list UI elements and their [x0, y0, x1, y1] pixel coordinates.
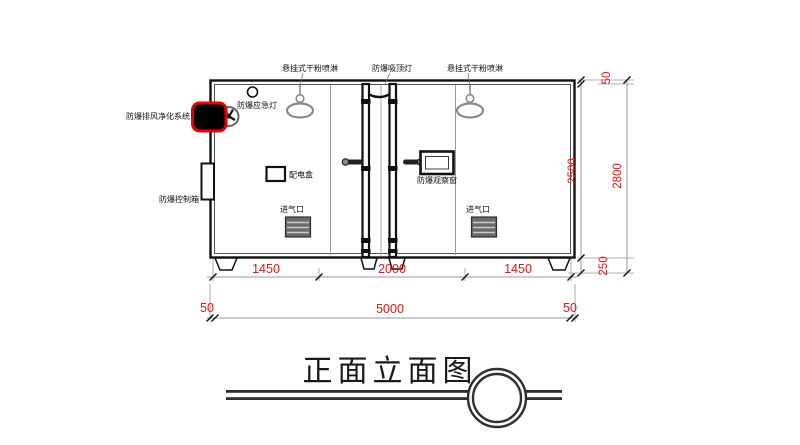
label-sprinkler-left: 悬挂式干粉喷淋: [282, 63, 338, 73]
dim-bottom-seg-3: 1450: [504, 262, 532, 276]
label-observation-window: 防爆观察窗: [417, 175, 457, 185]
label-emergency-lamp: 防爆应急灯: [237, 100, 277, 110]
dim-bottom-right-offset: 50: [563, 301, 577, 315]
label-control-cabinet: 防爆控制箱: [159, 194, 199, 204]
label-power-box: 配电盒: [289, 170, 313, 180]
air-inlet-right-grille: [472, 217, 497, 237]
title-mark-inner-circle: [473, 374, 521, 422]
control-cabinet-symbol: [202, 164, 215, 200]
emergency-lamp-symbol: [248, 87, 258, 97]
label-purifier-unit: 防爆排风净化系统: [126, 111, 190, 121]
dim-bottom-seg-1: 1450: [252, 262, 280, 276]
dim-right-base-height: 250: [598, 256, 610, 275]
air-inlet-left-grille: [286, 217, 311, 237]
dim-right-inner-height: 2500: [567, 158, 579, 184]
dim-bottom-total: 5000: [376, 302, 404, 316]
purifier-unit-symbol: [193, 103, 227, 131]
dim-bottom-left-offset: 50: [200, 301, 214, 315]
foot-left: [215, 258, 237, 270]
foot-center-left: [361, 258, 377, 269]
label-air-inlet-right: 进气口: [466, 204, 490, 214]
dim-right-top-offset: 50: [601, 72, 613, 85]
drawing-title: 正面立面图: [303, 355, 478, 388]
label-sprinkler-right: 悬挂式干粉喷淋: [447, 63, 503, 73]
dim-bottom-seg-2: 2000: [378, 262, 406, 276]
front-elevation-svg: 悬挂式干粉喷淋 防爆吸顶灯 悬挂式干粉喷淋 防爆应急灯 防爆排风净化系统 防爆控…: [0, 0, 800, 445]
elevation-drawing-canvas: 悬挂式干粉喷淋 防爆吸顶灯 悬挂式干粉喷淋 防爆应急灯 防爆排风净化系统 防爆控…: [0, 0, 800, 445]
label-ceiling-lamp: 防爆吸顶灯: [372, 63, 412, 73]
label-air-inlet-left: 进气口: [280, 204, 304, 214]
foot-right: [548, 258, 570, 270]
power-box-symbol: [267, 167, 286, 181]
dim-right-total-height: 2800: [612, 163, 624, 189]
